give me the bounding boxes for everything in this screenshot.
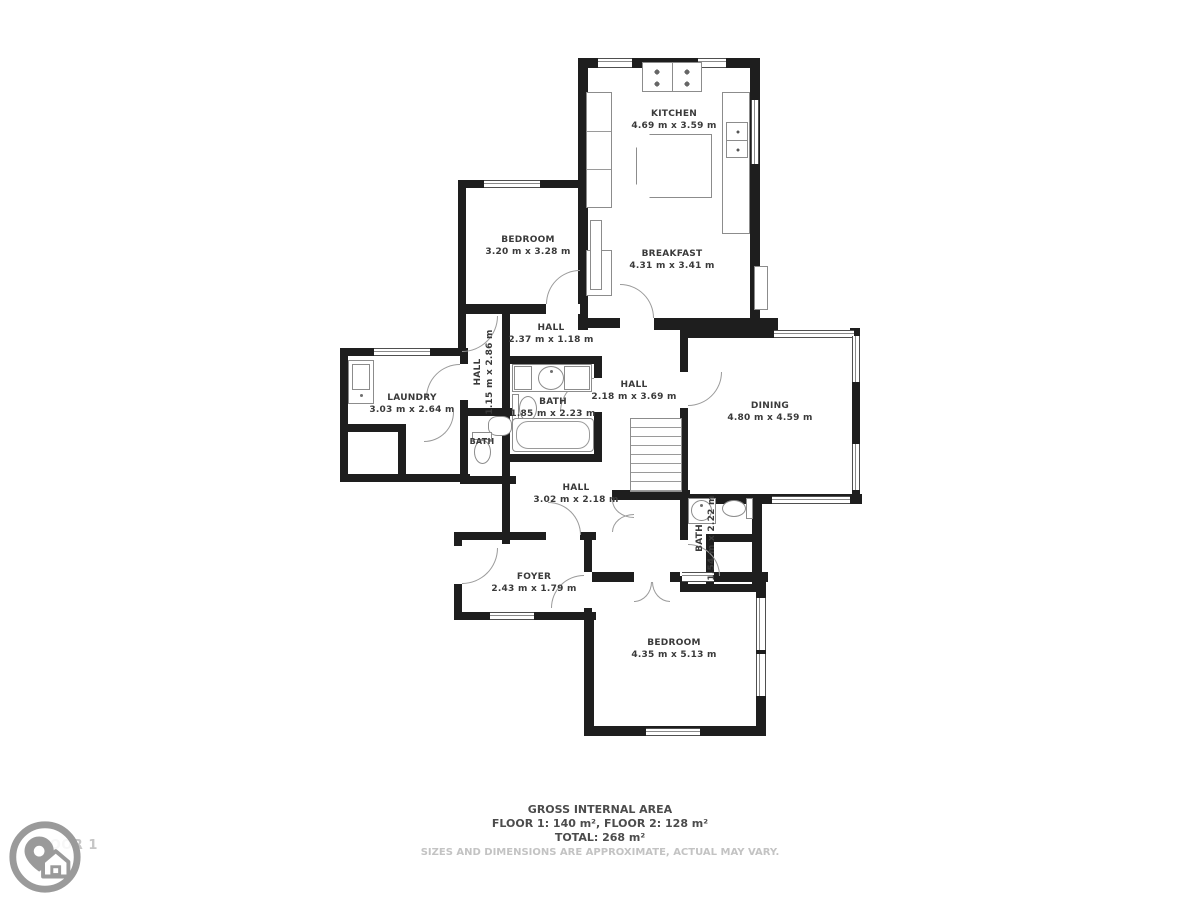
- wall: [458, 180, 466, 312]
- laundry-sink-basin: [352, 364, 370, 390]
- room-dims: 3.20 m x 3.28 m: [485, 246, 570, 258]
- room-name: HALL: [508, 322, 593, 334]
- room-name: HALL: [591, 379, 676, 391]
- room-label-hall-vertical: HALL 1.15 m x 2.86 m: [472, 329, 496, 414]
- gross-internal-area-title: GROSS INTERNAL AREA: [0, 803, 1200, 817]
- room-dims: 3.02 m x 2.18 m: [533, 494, 618, 506]
- room-label-hall-center: HALL 2.18 m x 3.69 m: [591, 379, 676, 403]
- footer: GROSS INTERNAL AREA FLOOR 1: 140 m², FLO…: [0, 803, 1200, 860]
- room-name: HALL: [472, 329, 484, 414]
- faucet-dot: [550, 370, 553, 373]
- room-dims: 1.54 m x 2.22 m: [706, 495, 718, 580]
- room-dims: 4.80 m x 4.59 m: [727, 412, 812, 424]
- vanity-cabinet: [514, 366, 532, 390]
- floor-areas-line: FLOOR 1: 140 m², FLOOR 2: 128 m²: [0, 817, 1200, 831]
- room-dims: 4.35 m x 5.13 m: [631, 649, 716, 661]
- door-opening: [620, 318, 654, 330]
- room-dims: 4.31 m x 3.41 m: [629, 260, 714, 272]
- room-name: DINING: [727, 400, 812, 412]
- window: [756, 654, 766, 696]
- toilet-tank: [746, 498, 753, 519]
- room-label-hall-top: HALL 2.37 m x 1.18 m: [508, 322, 593, 346]
- vanity-cabinet: [564, 366, 590, 390]
- window: [774, 330, 854, 338]
- room-label-foyer: FOYER 2.43 m x 1.79 m: [491, 571, 576, 595]
- window: [646, 728, 700, 736]
- room-dims: 2.18 m x 3.69 m: [591, 391, 676, 403]
- closet-door-arc: [634, 582, 652, 602]
- room-name: BEDROOM: [485, 234, 570, 246]
- room-name: FOYER: [491, 571, 576, 583]
- room-name: KITCHEN: [631, 108, 716, 120]
- wall: [502, 356, 602, 364]
- toilet: [722, 500, 746, 517]
- door-opening: [584, 572, 592, 608]
- room-name: BATH: [470, 436, 495, 448]
- total-area-line: TOTAL: 268 m²: [0, 831, 1200, 845]
- door-opening: [454, 546, 462, 584]
- room-label-breakfast: BREAKFAST 4.31 m x 3.41 m: [629, 248, 714, 272]
- room-label-bath-right: BATH 1.54 m x 2.22 m: [694, 495, 718, 580]
- door-arc: [424, 412, 454, 442]
- room-label-bath-small: BATH: [470, 436, 495, 448]
- window: [484, 180, 540, 188]
- appliance: [754, 266, 768, 310]
- door-opening: [680, 540, 688, 576]
- wall: [680, 584, 762, 592]
- door-arc: [620, 284, 654, 318]
- window: [852, 336, 860, 382]
- window: [598, 58, 632, 68]
- door-opening: [634, 572, 670, 582]
- closet-door-arc: [652, 582, 670, 602]
- window: [698, 58, 726, 68]
- kitchen-counter: [586, 92, 612, 208]
- staircase: [630, 418, 682, 492]
- stove: [642, 62, 702, 92]
- room-name: HALL: [533, 482, 618, 494]
- faucet-dot: [360, 394, 363, 397]
- room-dims: 3.03 m x 2.64 m: [369, 404, 454, 416]
- room-dims: 4.69 m x 3.59 m: [631, 120, 716, 132]
- door-opening: [460, 364, 468, 400]
- kitchen-counter: [722, 92, 750, 234]
- wall: [398, 424, 406, 480]
- door-opening: [546, 304, 580, 314]
- window: [490, 612, 534, 620]
- door-arc: [612, 514, 634, 532]
- wall: [584, 572, 768, 582]
- room-label-bath-center: BATH 1.85 m x 2.23 m: [510, 396, 595, 420]
- window: [852, 444, 860, 490]
- door-arc: [688, 372, 722, 406]
- room-name: LAUNDRY: [369, 392, 454, 404]
- wall: [460, 476, 516, 484]
- room-label-kitchen: KITCHEN 4.69 m x 3.59 m: [631, 108, 716, 132]
- room-label-laundry: LAUNDRY 3.03 m x 2.64 m: [369, 392, 454, 416]
- bathtub-basin: [516, 421, 590, 449]
- door-arc: [546, 270, 580, 304]
- wall: [340, 348, 348, 482]
- window: [756, 598, 766, 650]
- room-name: BREAKFAST: [629, 248, 714, 260]
- window: [772, 496, 850, 504]
- room-name: BEDROOM: [631, 637, 716, 649]
- room-name: BATH: [694, 495, 706, 580]
- room-dims: 2.43 m x 1.79 m: [491, 583, 576, 595]
- wall: [680, 328, 776, 338]
- wall: [344, 424, 402, 432]
- room-dims: 2.37 m x 1.18 m: [508, 334, 593, 346]
- room-dims: 1.85 m x 2.23 m: [510, 408, 595, 420]
- wall: [502, 454, 602, 462]
- radiator: [590, 220, 602, 290]
- door-opening: [680, 372, 688, 408]
- wall: [584, 620, 594, 736]
- floor-plan-canvas: KITCHEN 4.69 m x 3.59 m BEDROOM 3.20 m x…: [0, 0, 1200, 900]
- room-label-dining: DINING 4.80 m x 4.59 m: [727, 400, 812, 424]
- floorplan-logo-icon: [6, 818, 84, 896]
- kitchen-sink: [726, 122, 748, 158]
- room-dims: 1.15 m x 2.86 m: [484, 329, 496, 414]
- room-label-bedroom: BEDROOM 3.20 m x 3.28 m: [485, 234, 570, 258]
- window: [374, 348, 430, 356]
- door-arc: [548, 502, 581, 535]
- disclaimer-text: SIZES AND DIMENSIONS ARE APPROXIMATE, AC…: [0, 845, 1200, 860]
- kitchen-island: [636, 134, 712, 198]
- room-label-bedroom2: BEDROOM 4.35 m x 5.13 m: [631, 637, 716, 661]
- room-label-hall-lower: HALL 3.02 m x 2.18 m: [533, 482, 618, 506]
- window: [751, 100, 759, 164]
- room-name: BATH: [510, 396, 595, 408]
